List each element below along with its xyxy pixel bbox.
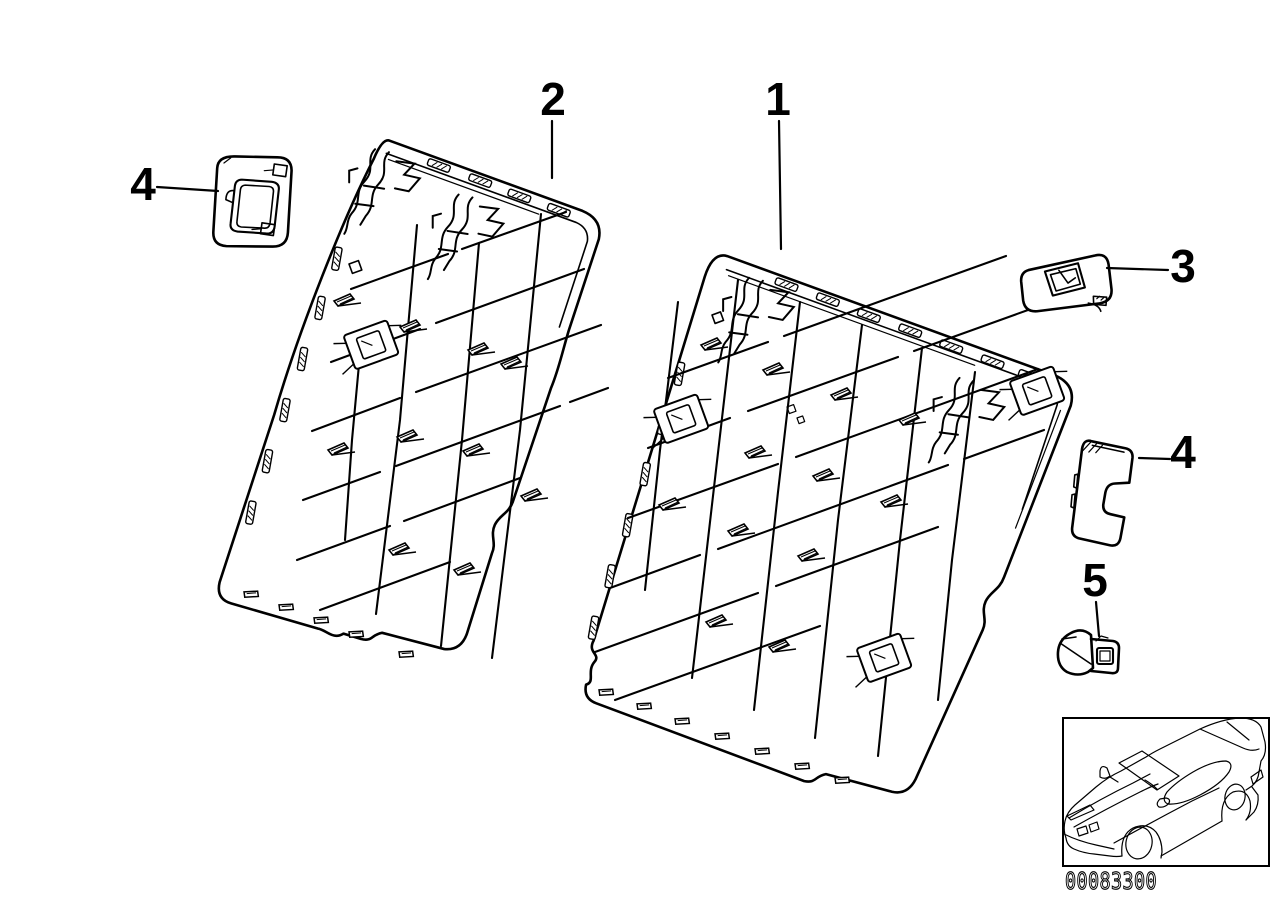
car-thumbnail-frame <box>1063 718 1269 866</box>
leader-line-callout-4-right <box>1139 458 1170 459</box>
callout-4-right[interactable]: 4 <box>1170 426 1196 478</box>
callout-2[interactable]: 2 <box>540 73 566 125</box>
parts-diagram-page: 2 1 4 3 4 5 00083300 <box>0 0 1288 910</box>
drawing-number: 00083300 <box>1065 869 1157 895</box>
callout-4-left[interactable]: 4 <box>130 158 156 210</box>
callout-3[interactable]: 3 <box>1170 240 1196 292</box>
parts-diagram-canvas: 2 1 4 3 4 5 00083300 <box>0 0 1288 910</box>
callout-1[interactable]: 1 <box>765 73 791 125</box>
callout-5[interactable]: 5 <box>1082 554 1108 606</box>
